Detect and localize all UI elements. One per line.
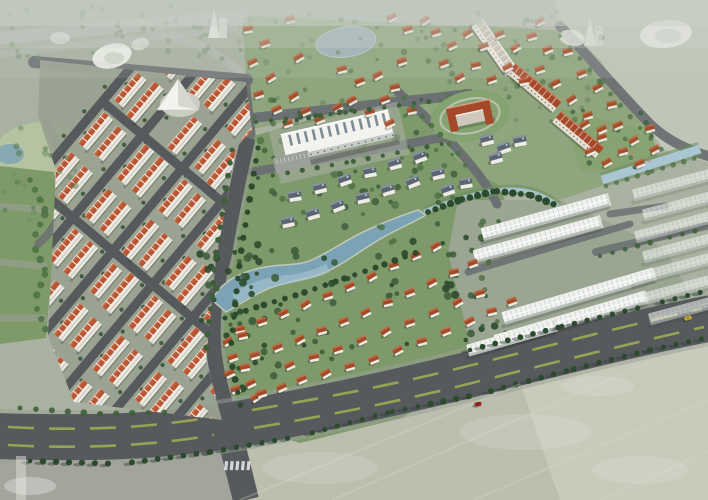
tree xyxy=(99,332,103,336)
tree xyxy=(32,246,39,253)
tree xyxy=(320,100,326,106)
tree xyxy=(668,235,673,240)
tree xyxy=(301,289,308,296)
tree xyxy=(647,240,653,246)
shrub xyxy=(168,454,174,460)
tree xyxy=(215,237,221,243)
tree xyxy=(648,136,653,141)
tree xyxy=(375,253,382,260)
shrub xyxy=(79,460,85,466)
tree xyxy=(294,118,299,123)
tree xyxy=(49,407,55,413)
tree xyxy=(442,163,448,169)
tree xyxy=(60,216,64,220)
tree xyxy=(229,147,234,152)
tree xyxy=(261,348,268,355)
shrub xyxy=(584,318,589,323)
tree xyxy=(227,160,233,166)
tree xyxy=(272,299,277,304)
tree xyxy=(260,301,267,308)
tree xyxy=(382,105,386,109)
aerial-render-canvas xyxy=(0,0,708,500)
tree xyxy=(251,115,257,121)
tree xyxy=(240,273,246,279)
tree xyxy=(220,212,225,217)
shrub xyxy=(685,293,690,298)
tree xyxy=(306,115,311,120)
tree xyxy=(270,372,277,379)
tree xyxy=(181,234,185,238)
shrub xyxy=(648,347,653,352)
field-patch xyxy=(592,456,688,484)
shrub xyxy=(193,451,199,457)
tree xyxy=(223,185,229,191)
tree xyxy=(232,250,237,255)
tree xyxy=(30,209,36,215)
tree xyxy=(248,291,254,297)
shrub xyxy=(559,324,565,330)
tree xyxy=(586,160,592,166)
shrub xyxy=(543,328,549,334)
tree xyxy=(16,150,22,156)
tree xyxy=(121,225,125,229)
tree xyxy=(118,390,122,394)
tree xyxy=(397,103,402,108)
shrub xyxy=(272,438,277,443)
tree xyxy=(377,224,382,229)
tree xyxy=(391,278,398,285)
tree xyxy=(447,200,454,207)
tree xyxy=(598,254,602,258)
tree xyxy=(122,143,126,147)
tree xyxy=(240,235,246,241)
tree xyxy=(370,187,374,191)
tree xyxy=(320,349,325,354)
tree xyxy=(414,130,420,136)
shrub xyxy=(373,413,378,418)
tree xyxy=(351,159,356,164)
tree xyxy=(13,143,19,149)
tree xyxy=(57,169,63,175)
tree xyxy=(467,330,475,338)
tree xyxy=(22,183,27,188)
tree xyxy=(480,218,487,225)
tree xyxy=(611,140,614,143)
tree xyxy=(395,184,402,191)
shrub xyxy=(142,458,148,464)
tree xyxy=(331,259,338,266)
tree xyxy=(27,217,32,222)
tree xyxy=(233,312,239,318)
layer-haze xyxy=(0,0,708,78)
tree xyxy=(140,283,144,287)
shrub xyxy=(660,299,665,304)
tree xyxy=(81,296,85,300)
shrub xyxy=(322,427,327,432)
tree xyxy=(659,147,664,152)
tree xyxy=(598,81,602,85)
shrub xyxy=(686,339,691,344)
shrub xyxy=(530,331,536,337)
field-patch xyxy=(459,414,591,450)
tree xyxy=(425,209,431,215)
shrub xyxy=(492,341,498,347)
tree xyxy=(200,292,204,296)
tree xyxy=(210,280,216,286)
tree xyxy=(285,170,290,175)
tree xyxy=(48,153,53,158)
tree xyxy=(213,285,220,292)
tree xyxy=(113,410,119,416)
tree xyxy=(635,173,641,179)
tree xyxy=(209,293,216,300)
tree xyxy=(344,160,349,165)
shrub xyxy=(360,417,365,422)
tree xyxy=(249,285,253,289)
tree xyxy=(235,390,240,395)
shrub xyxy=(155,456,161,462)
tree xyxy=(235,276,241,282)
tree xyxy=(405,342,410,347)
tree xyxy=(271,173,275,177)
tree xyxy=(269,248,274,253)
tree xyxy=(447,281,455,289)
tree xyxy=(245,209,250,214)
tree xyxy=(610,250,615,255)
tree xyxy=(31,205,35,209)
shrub xyxy=(440,398,446,404)
tree xyxy=(246,252,253,259)
tree xyxy=(262,148,268,154)
tree xyxy=(623,137,628,142)
tree xyxy=(199,374,203,378)
tree xyxy=(341,275,348,282)
tree xyxy=(603,121,606,124)
tree xyxy=(41,211,49,219)
tree xyxy=(121,329,125,333)
tree xyxy=(692,156,697,161)
tree xyxy=(450,251,456,257)
tree xyxy=(337,109,343,115)
tree xyxy=(318,113,324,119)
shrub xyxy=(634,351,639,356)
tree xyxy=(200,396,204,400)
shrub xyxy=(661,344,666,349)
tree xyxy=(349,108,354,113)
pavement-patch xyxy=(4,477,56,495)
tree xyxy=(417,164,423,170)
tree xyxy=(426,99,431,104)
tree xyxy=(550,201,556,207)
tree xyxy=(328,112,332,116)
tree xyxy=(506,95,511,100)
tree xyxy=(103,85,107,89)
tree xyxy=(262,343,268,349)
shrub xyxy=(622,308,627,313)
tree xyxy=(391,201,399,209)
tree xyxy=(253,255,259,261)
tree xyxy=(372,198,380,206)
tree xyxy=(463,235,469,241)
tree xyxy=(253,304,259,310)
tree xyxy=(321,255,327,261)
tree xyxy=(410,147,415,152)
tree xyxy=(440,142,444,146)
tree xyxy=(33,406,39,412)
tree xyxy=(394,291,399,296)
tree xyxy=(450,171,457,178)
tree xyxy=(463,338,468,343)
tree xyxy=(412,168,418,174)
tree xyxy=(143,118,147,122)
tree xyxy=(638,111,643,116)
tree xyxy=(249,183,255,189)
tree xyxy=(434,148,438,152)
tree xyxy=(614,180,619,185)
tree xyxy=(246,196,253,203)
tree xyxy=(205,332,211,338)
tree xyxy=(624,177,629,182)
shrub xyxy=(517,334,523,340)
tree xyxy=(139,365,143,369)
tree xyxy=(509,189,516,196)
tree xyxy=(444,292,452,300)
tree xyxy=(402,254,407,259)
tree xyxy=(643,120,649,126)
tree xyxy=(161,259,165,263)
tree xyxy=(585,85,591,91)
tree xyxy=(42,150,49,157)
tree xyxy=(42,326,49,333)
tree xyxy=(206,319,212,325)
shrub xyxy=(285,436,290,441)
tree xyxy=(81,192,85,196)
field-patch xyxy=(562,376,634,396)
tree xyxy=(146,410,151,415)
tree xyxy=(420,114,425,119)
tree xyxy=(3,207,8,212)
shrub xyxy=(40,458,46,464)
tree xyxy=(238,247,245,254)
tree xyxy=(162,176,166,180)
tree xyxy=(300,168,305,173)
tree xyxy=(609,126,612,129)
tree xyxy=(296,318,301,323)
tree xyxy=(435,221,441,227)
tree xyxy=(429,123,435,129)
tree xyxy=(32,187,38,193)
tree xyxy=(38,316,44,322)
tree xyxy=(269,118,273,122)
shrub xyxy=(699,336,704,341)
shrub xyxy=(335,423,340,428)
tree xyxy=(224,103,228,107)
tree xyxy=(291,247,299,255)
shrub xyxy=(390,409,395,414)
tree xyxy=(282,296,288,302)
shrub xyxy=(129,459,135,465)
tree xyxy=(451,291,459,299)
tree xyxy=(432,206,438,212)
tree xyxy=(301,210,306,215)
tree xyxy=(225,268,232,275)
tree xyxy=(623,247,628,252)
shrub xyxy=(551,371,557,377)
south-exit-road xyxy=(233,448,246,500)
tree xyxy=(268,97,274,103)
shrub xyxy=(468,348,472,352)
tree xyxy=(585,97,591,103)
tree xyxy=(237,321,242,326)
tree xyxy=(179,399,183,403)
tree xyxy=(27,177,33,183)
tree xyxy=(33,291,40,298)
tree xyxy=(440,241,445,246)
tree xyxy=(681,159,687,165)
tree xyxy=(228,340,234,346)
tree xyxy=(627,114,632,119)
shrub xyxy=(505,337,511,343)
tree xyxy=(101,167,105,171)
tree xyxy=(349,344,354,349)
tree xyxy=(353,169,357,173)
shrub xyxy=(416,404,421,409)
tree xyxy=(352,272,357,277)
tree xyxy=(129,410,136,417)
tree xyxy=(322,282,328,288)
shrub xyxy=(221,447,227,453)
tree xyxy=(229,364,235,370)
tree xyxy=(283,120,287,124)
tree xyxy=(18,125,24,131)
tree xyxy=(34,306,40,312)
tree xyxy=(199,318,204,323)
tree xyxy=(64,155,69,160)
tree xyxy=(254,241,261,248)
shrub xyxy=(609,357,615,363)
tree xyxy=(275,361,282,368)
tree xyxy=(234,288,240,294)
shrub xyxy=(66,459,72,465)
shrub xyxy=(480,344,486,350)
tree xyxy=(312,286,317,291)
shrub xyxy=(621,354,627,360)
tree xyxy=(503,87,507,91)
shrub xyxy=(347,420,352,425)
tree xyxy=(253,158,259,164)
tree xyxy=(528,192,535,199)
tree xyxy=(97,411,103,417)
tree xyxy=(232,376,239,383)
tree xyxy=(100,250,104,254)
tree xyxy=(248,317,256,325)
tree xyxy=(36,256,44,264)
shrub xyxy=(181,453,187,459)
tree xyxy=(56,205,61,210)
tree xyxy=(303,87,307,91)
tree xyxy=(78,357,82,361)
shrub xyxy=(453,396,459,402)
shrub xyxy=(596,360,602,366)
tree xyxy=(196,250,204,258)
tree xyxy=(459,196,465,202)
tree xyxy=(213,255,218,260)
tree xyxy=(455,151,460,156)
tree xyxy=(71,182,78,189)
tree xyxy=(411,105,416,110)
shrub xyxy=(673,342,678,347)
tree xyxy=(381,153,385,157)
tree xyxy=(37,281,44,288)
tree xyxy=(402,96,406,100)
tree xyxy=(222,315,227,320)
masterplan-aerial-render: Aerial 3D rendering of a residential mas… xyxy=(0,0,708,500)
tree xyxy=(159,341,163,345)
shrub xyxy=(488,388,494,394)
tree xyxy=(412,250,418,256)
tree xyxy=(255,272,259,276)
tree xyxy=(570,110,575,115)
tree xyxy=(257,137,264,144)
tree xyxy=(202,209,206,213)
tree xyxy=(203,345,209,351)
tree xyxy=(17,405,22,410)
tree xyxy=(217,224,223,230)
tree xyxy=(618,103,623,108)
tree xyxy=(437,132,443,138)
tree xyxy=(482,190,490,198)
tree xyxy=(501,189,508,196)
tree xyxy=(141,201,145,205)
tree xyxy=(479,275,485,281)
shrub xyxy=(208,449,214,455)
tree xyxy=(292,292,298,298)
shrub xyxy=(538,375,544,381)
shrub xyxy=(583,363,589,369)
shrub xyxy=(105,461,111,467)
shrub xyxy=(234,445,240,451)
tree xyxy=(272,191,278,197)
tree xyxy=(242,222,248,228)
tree xyxy=(203,253,210,260)
tree xyxy=(255,145,260,150)
tree xyxy=(57,148,61,152)
tree xyxy=(450,153,454,157)
shrub xyxy=(672,296,677,301)
tree xyxy=(182,152,186,156)
haze-overlay xyxy=(0,0,708,78)
tree xyxy=(440,203,447,210)
tree xyxy=(42,271,48,277)
tree xyxy=(312,339,318,345)
tree xyxy=(376,184,380,188)
tree xyxy=(80,274,84,278)
tree xyxy=(278,302,283,307)
tree xyxy=(467,194,474,201)
tree xyxy=(447,79,452,84)
tree xyxy=(119,308,123,312)
tree xyxy=(359,188,364,193)
tree xyxy=(474,192,481,199)
shrub xyxy=(53,459,59,465)
tree xyxy=(419,98,423,102)
shrub xyxy=(610,312,615,317)
tree xyxy=(32,231,39,238)
tree xyxy=(537,106,541,110)
tree xyxy=(343,110,348,115)
shrub xyxy=(572,321,578,327)
shrub xyxy=(571,366,577,372)
